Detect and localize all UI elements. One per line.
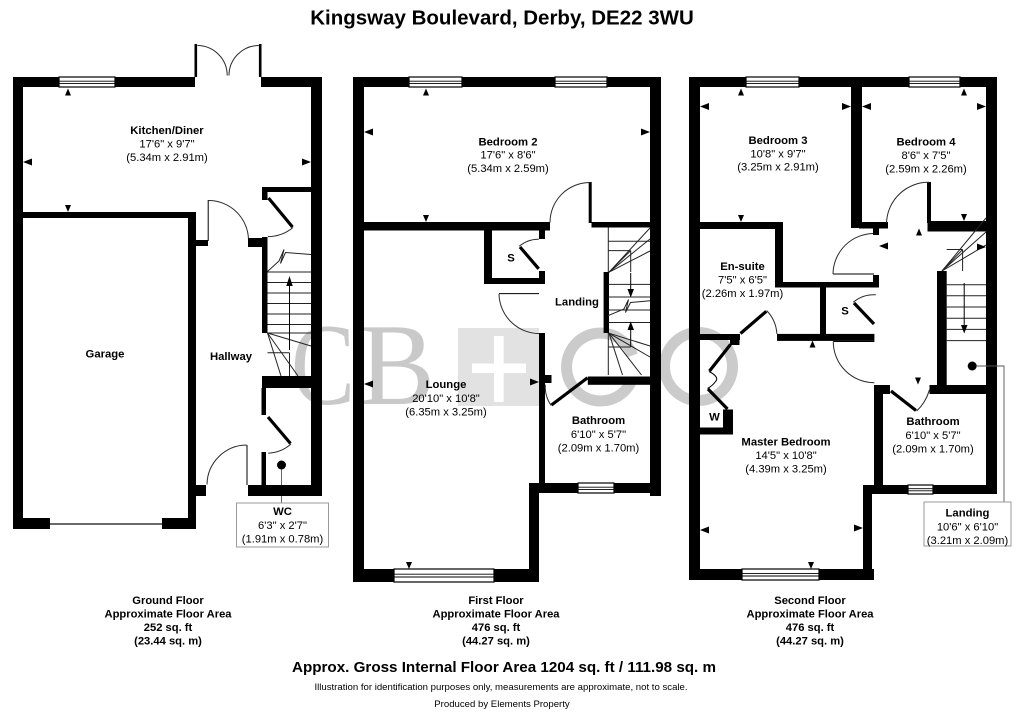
svg-text:Kingsway Boulevard, Derby, DE2: Kingsway Boulevard, Derby, DE22 3WU <box>310 7 694 30</box>
svg-text:476 sq. ft: 476 sq. ft <box>472 622 521 634</box>
svg-text:(23.44 sq. m): (23.44 sq. m) <box>134 636 202 648</box>
svg-text:Landing: Landing <box>946 508 990 520</box>
svg-text:(3.25m x 2.91m): (3.25m x 2.91m) <box>737 162 819 174</box>
svg-text:Bathroom: Bathroom <box>906 416 959 428</box>
svg-text:Landing: Landing <box>555 297 599 309</box>
svg-text:(5.34m x 2.91m): (5.34m x 2.91m) <box>126 152 208 164</box>
svg-text:En-suite: En-suite <box>720 261 765 273</box>
svg-text:Bedroom 4: Bedroom 4 <box>896 137 956 149</box>
svg-text:(2.09m x 1.70m): (2.09m x 1.70m) <box>892 444 974 456</box>
svg-text:Produced by Elements Property: Produced by Elements Property <box>434 699 570 710</box>
svg-text:20'10" x 10'8": 20'10" x 10'8" <box>412 393 480 405</box>
svg-text:(2.09m x 1.70m): (2.09m x 1.70m) <box>558 443 640 455</box>
svg-text:10'6" x 6'10": 10'6" x 6'10" <box>937 522 998 534</box>
svg-text:17'6" x 8'6": 17'6" x 8'6" <box>480 150 535 162</box>
svg-text:S: S <box>507 253 515 265</box>
svg-text:Illustration for identificatio: Illustration for identification purposes… <box>314 682 687 693</box>
svg-text:7'5" x 6'5": 7'5" x 6'5" <box>718 275 767 287</box>
svg-text:Bathroom: Bathroom <box>572 415 625 427</box>
svg-text:6'10" x 5'7": 6'10" x 5'7" <box>571 429 626 441</box>
svg-text:8'6" x 7'5": 8'6" x 7'5" <box>902 150 951 162</box>
svg-text:6'3" x 2'7": 6'3" x 2'7" <box>258 520 307 532</box>
svg-text:Kitchen/Diner: Kitchen/Diner <box>130 125 204 137</box>
svg-text:476 sq. ft: 476 sq. ft <box>786 622 835 634</box>
svg-text:252 sq. ft: 252 sq. ft <box>144 622 193 634</box>
svg-text:Approximate Floor Area: Approximate Floor Area <box>104 609 232 621</box>
svg-text:(6.35m x 3.25m): (6.35m x 3.25m) <box>405 407 487 419</box>
svg-text:(2.59m x 2.26m): (2.59m x 2.26m) <box>885 164 967 176</box>
svg-text:6'10" x 5'7": 6'10" x 5'7" <box>905 430 960 442</box>
svg-text:Approx. Gross Internal Floor A: Approx. Gross Internal Floor Area 1204 s… <box>292 659 716 676</box>
svg-text:(44.27 sq. m): (44.27 sq. m) <box>462 636 530 648</box>
svg-text:(3.21m x 2.09m): (3.21m x 2.09m) <box>927 535 1009 547</box>
svg-text:Bedroom 3: Bedroom 3 <box>748 135 807 147</box>
svg-text:S: S <box>841 306 849 318</box>
svg-text:Master Bedroom: Master Bedroom <box>741 437 830 449</box>
svg-text:First Floor: First Floor <box>468 595 524 607</box>
svg-text:Approximate Floor Area: Approximate Floor Area <box>432 609 560 621</box>
svg-text:Ground Floor: Ground Floor <box>132 595 204 607</box>
svg-text:C: C <box>291 301 355 430</box>
svg-text:Garage: Garage <box>86 349 125 361</box>
svg-text:Lounge: Lounge <box>426 379 467 391</box>
svg-text:Hallway: Hallway <box>210 351 253 363</box>
svg-text:W: W <box>709 412 720 424</box>
svg-text:Bedroom 2: Bedroom 2 <box>478 137 537 149</box>
svg-text:WC: WC <box>273 506 292 518</box>
svg-text:(2.26m x 1.97m): (2.26m x 1.97m) <box>702 288 784 300</box>
svg-text:Second Floor: Second Floor <box>774 595 846 607</box>
svg-text:(4.39m x 3.25m): (4.39m x 3.25m) <box>745 464 827 476</box>
svg-text:10'8" x 9'7": 10'8" x 9'7" <box>750 149 805 161</box>
svg-text:(44.27 sq. m): (44.27 sq. m) <box>776 636 844 648</box>
svg-text:Approximate Floor Area: Approximate Floor Area <box>746 609 874 621</box>
svg-text:(1.91m x 0.78m): (1.91m x 0.78m) <box>242 534 324 546</box>
svg-text:17'6" x 9'7": 17'6" x 9'7" <box>139 139 194 151</box>
svg-text:(5.34m x 2.59m): (5.34m x 2.59m) <box>467 163 549 175</box>
svg-text:14'5" x 10'8": 14'5" x 10'8" <box>755 450 816 462</box>
